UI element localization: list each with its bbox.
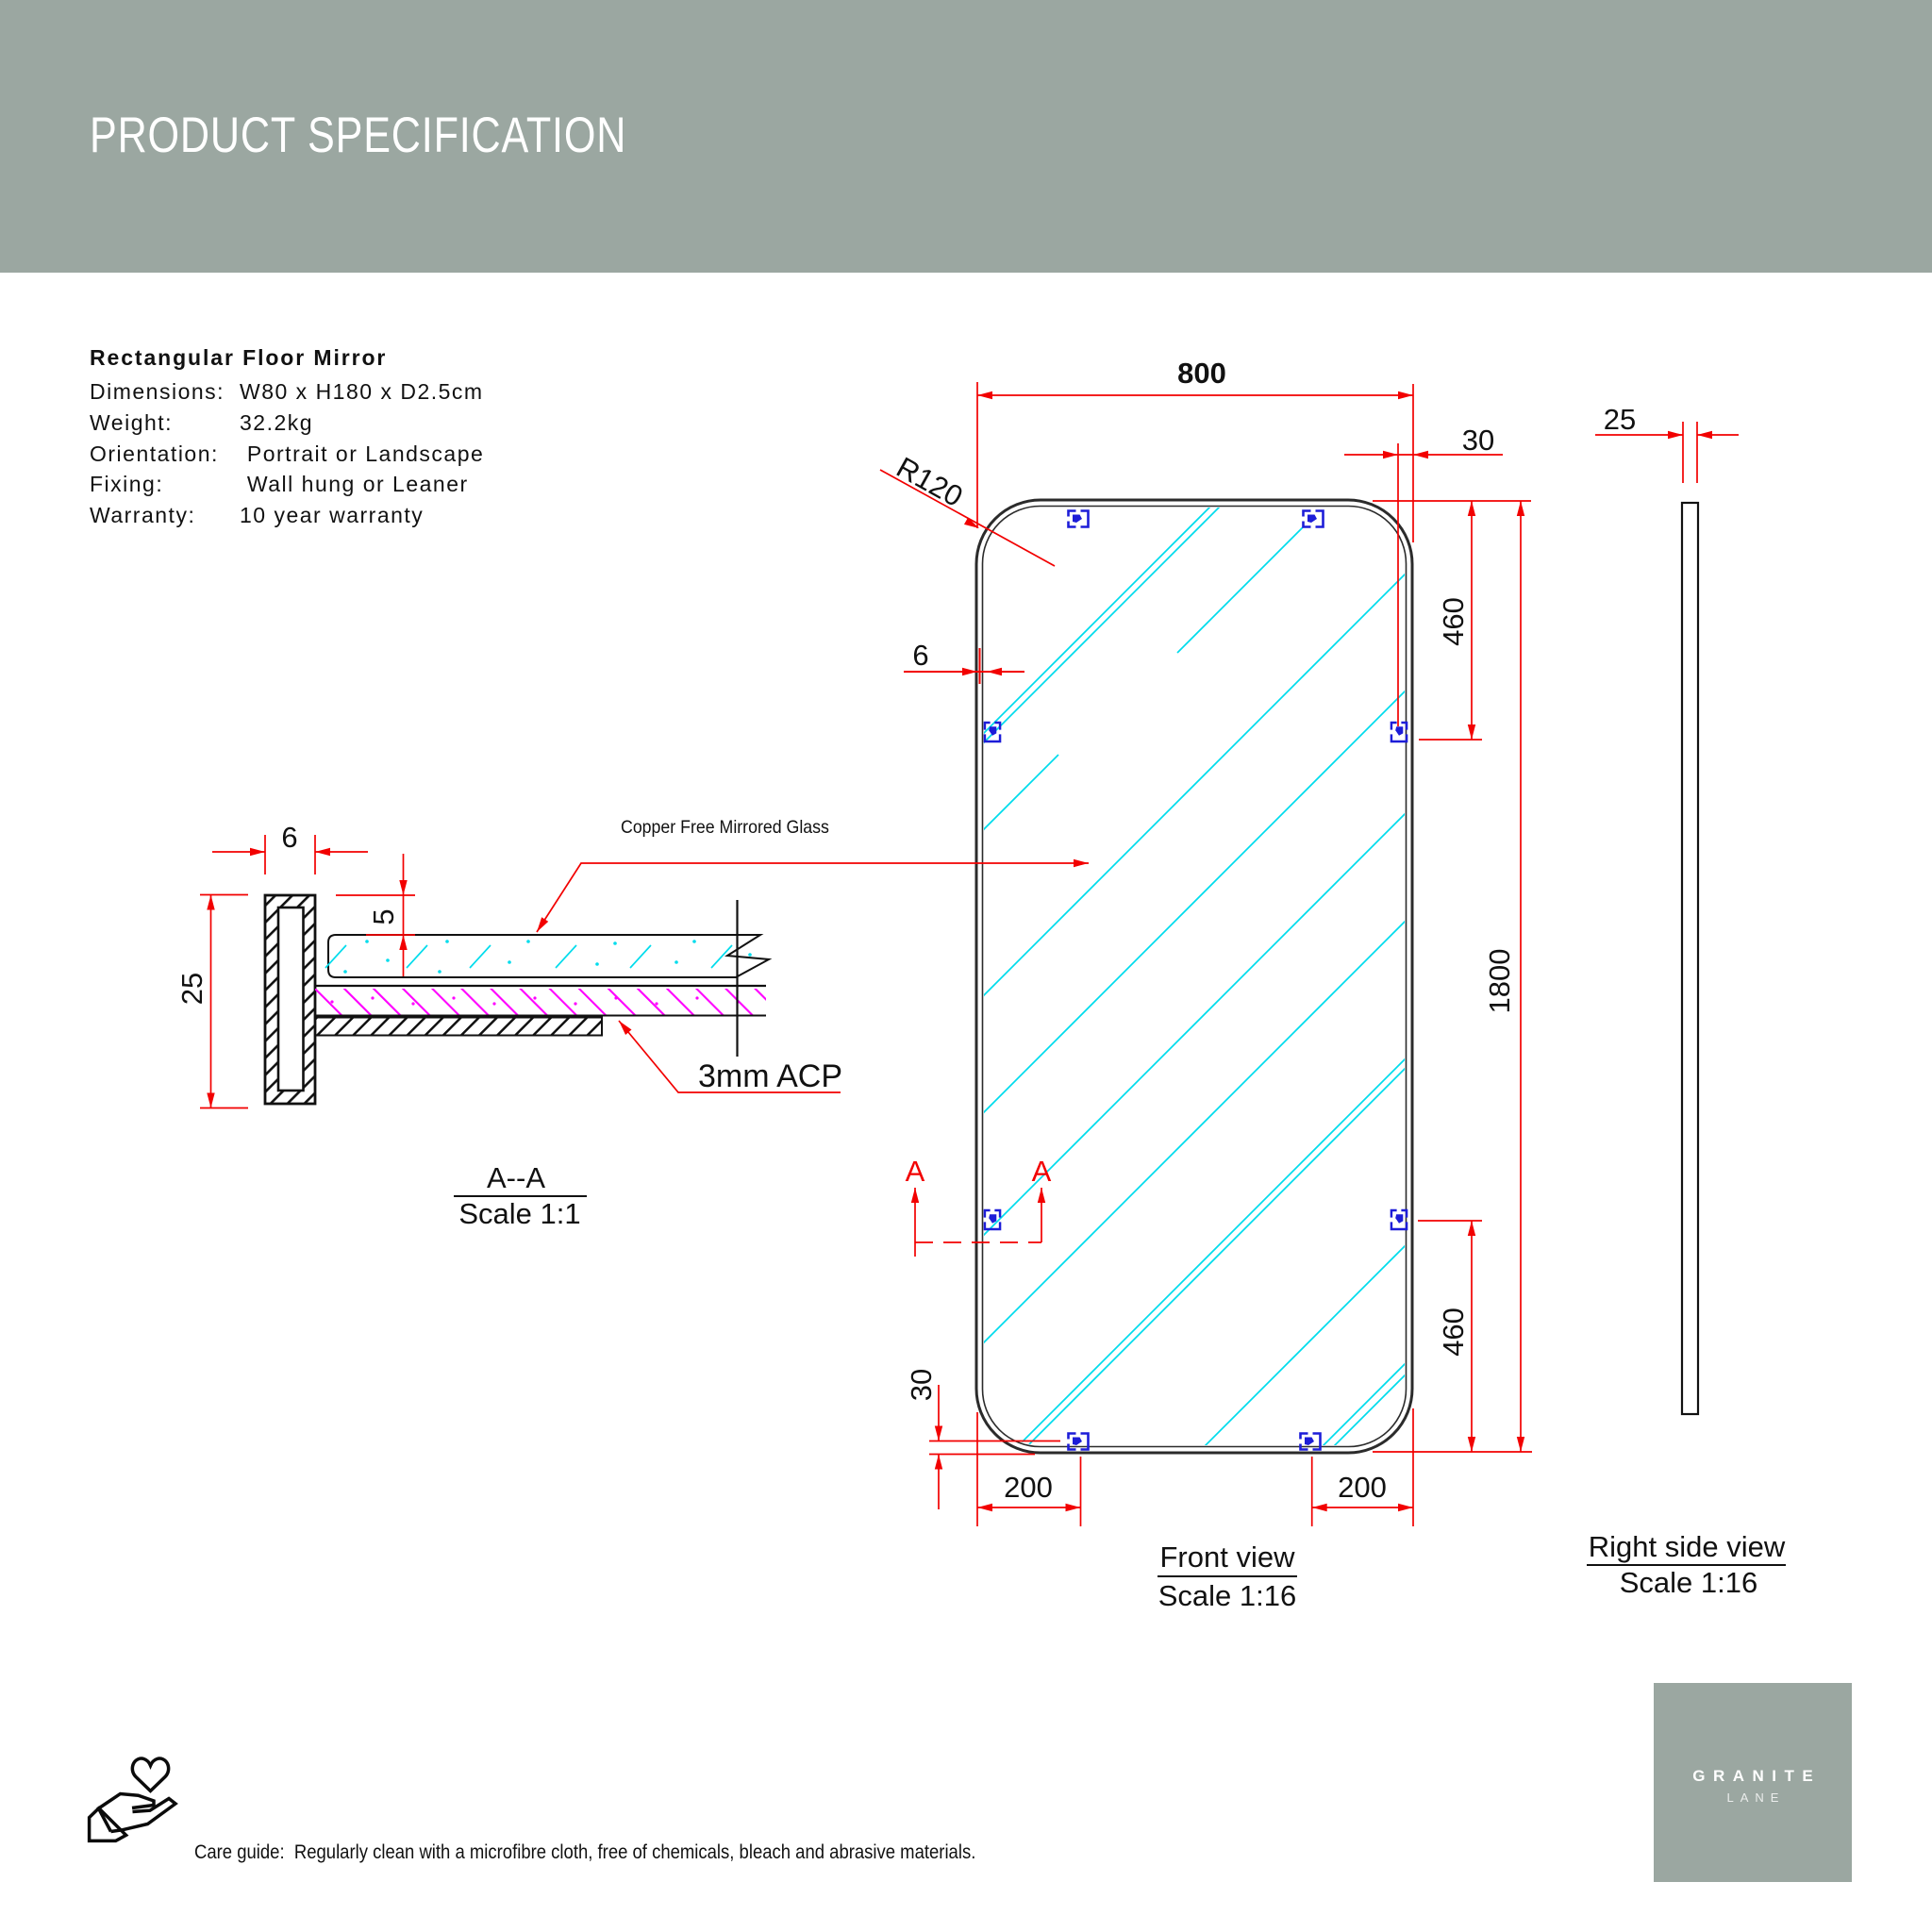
svg-text:6: 6 bbox=[912, 639, 928, 672]
svg-text:Scale 1:1: Scale 1:1 bbox=[458, 1197, 580, 1230]
svg-text:30: 30 bbox=[1462, 424, 1494, 457]
svg-text:A: A bbox=[1032, 1155, 1052, 1188]
svg-text:Scale 1:16: Scale 1:16 bbox=[1620, 1566, 1758, 1599]
svg-text:5: 5 bbox=[367, 908, 400, 924]
svg-text:30: 30 bbox=[905, 1369, 938, 1401]
svg-text:25: 25 bbox=[175, 973, 208, 1005]
svg-text:3mm ACP: 3mm ACP bbox=[698, 1058, 842, 1094]
svg-text:Right side view: Right side view bbox=[1589, 1530, 1786, 1563]
svg-text:800: 800 bbox=[1177, 357, 1226, 390]
svg-text:A--A: A--A bbox=[487, 1161, 545, 1194]
svg-text:200: 200 bbox=[1004, 1471, 1053, 1504]
svg-text:Front view: Front view bbox=[1160, 1541, 1296, 1574]
svg-text:A: A bbox=[906, 1155, 925, 1188]
svg-text:R120: R120 bbox=[891, 451, 969, 514]
svg-text:460: 460 bbox=[1437, 597, 1470, 646]
svg-text:200: 200 bbox=[1338, 1471, 1387, 1504]
svg-text:1800: 1800 bbox=[1483, 949, 1516, 1014]
svg-text:6: 6 bbox=[281, 821, 297, 854]
svg-text:Scale 1:16: Scale 1:16 bbox=[1158, 1579, 1297, 1612]
svg-text:25: 25 bbox=[1604, 403, 1636, 436]
svg-text:460: 460 bbox=[1437, 1307, 1470, 1357]
